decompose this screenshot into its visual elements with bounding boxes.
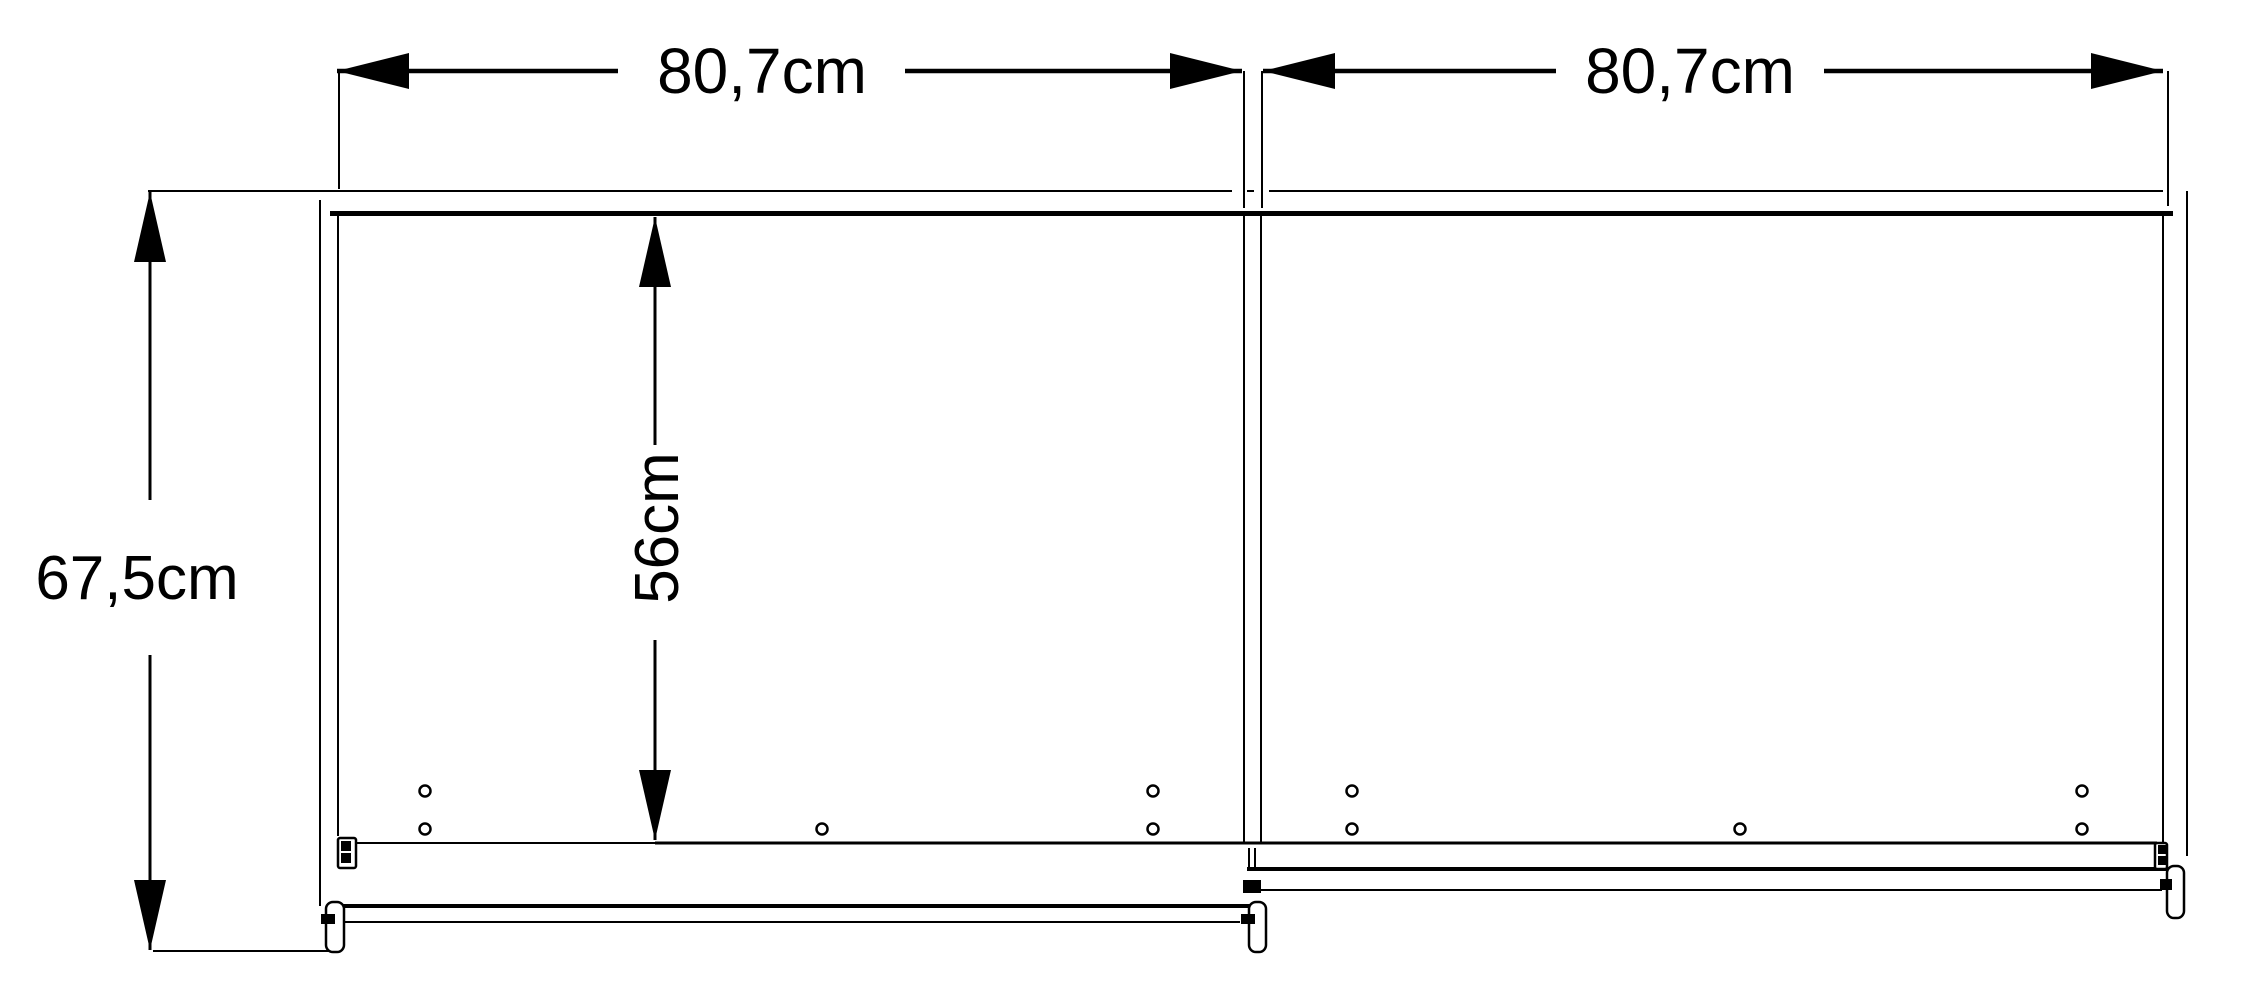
left-door-left-roller	[326, 902, 344, 952]
drill-hole	[420, 824, 431, 835]
divider-roller-mount-block	[1241, 914, 1255, 924]
right-door-divider-mount	[1243, 880, 1261, 893]
left-roller-mount-block	[321, 914, 335, 924]
dim-total-depth-label: 67,5cm	[35, 544, 238, 613]
left-wall-fitting-block-2	[341, 853, 351, 863]
drill-hole	[1148, 824, 1159, 835]
drill-hole	[1347, 786, 1358, 797]
right-wall-fitting-block-2	[2158, 856, 2167, 865]
dim-left-door-width-label: 80,7cm	[657, 35, 867, 107]
right-roller-mount-block	[2160, 879, 2172, 890]
drill-hole	[420, 786, 431, 797]
wardrobe-technical-drawing: 80,7cm80,7cm67,5cm56cm	[0, 0, 2252, 1003]
drill-hole	[2077, 786, 2088, 797]
drawing-page: 80,7cm80,7cm67,5cm56cm	[0, 0, 2252, 1003]
drill-hole	[1148, 786, 1159, 797]
drill-hole	[817, 824, 828, 835]
drill-hole	[1347, 824, 1358, 835]
dim-right-door-width-label: 80,7cm	[1585, 35, 1795, 107]
drill-hole	[1735, 824, 1746, 835]
right-wall-fitting-block-1	[2158, 845, 2167, 854]
left-door-right-roller	[1249, 902, 1266, 952]
drill-hole	[2077, 824, 2088, 835]
right-door-right-roller	[2167, 866, 2184, 918]
dim-interior-depth-label: 56cm	[623, 452, 692, 604]
left-wall-fitting-block-1	[341, 841, 351, 851]
